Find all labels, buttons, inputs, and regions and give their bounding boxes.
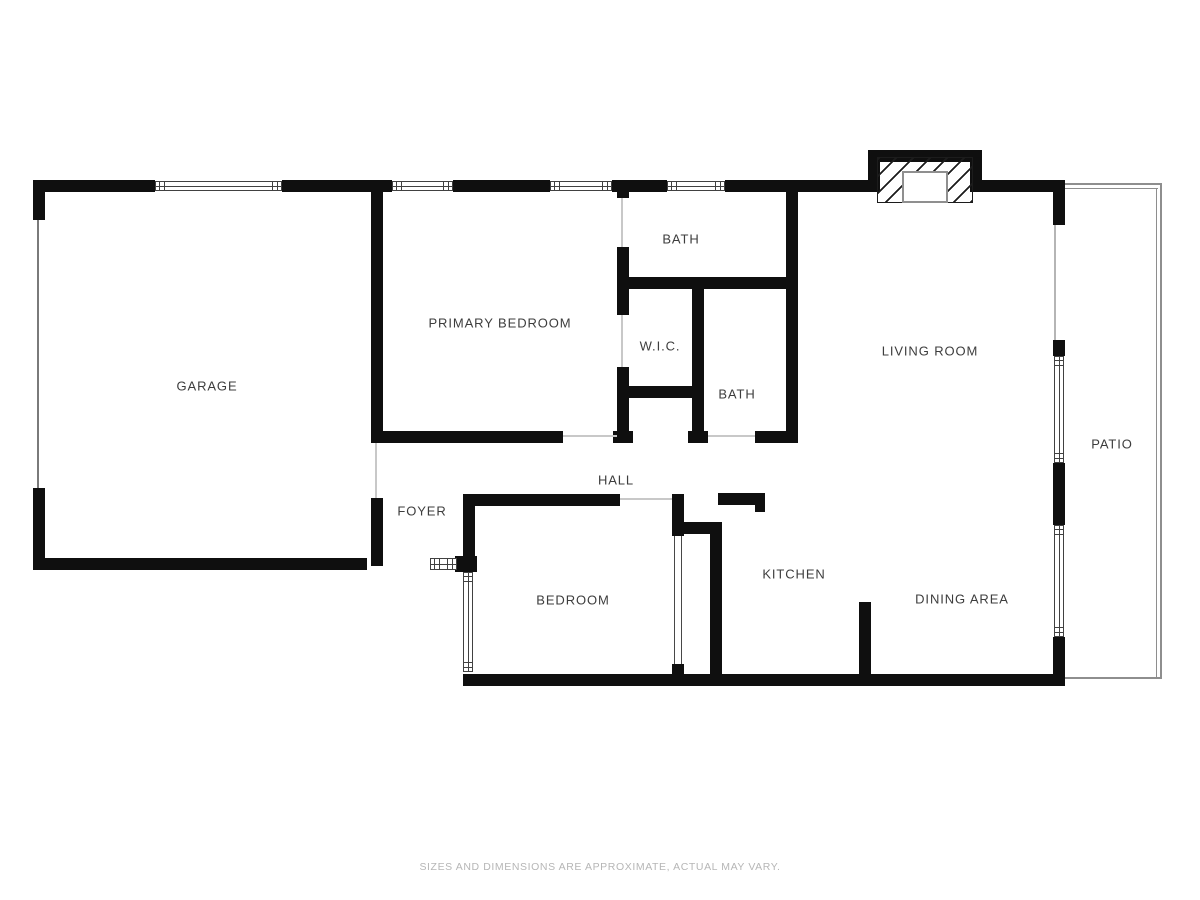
patio-edge-top-inner <box>1065 188 1158 189</box>
wall-segment <box>625 277 798 289</box>
wall-segment <box>688 431 708 443</box>
wall-segment <box>1053 180 1065 225</box>
wall-segment <box>617 367 629 431</box>
garage-vehicle-door-line <box>37 220 39 488</box>
window-glyph <box>550 181 612 191</box>
wall-segment <box>463 494 620 506</box>
wall-segment <box>692 289 704 431</box>
window-glyph <box>1054 525 1064 637</box>
window-jamb-tick <box>1055 529 1063 535</box>
window-jamb-tick <box>1055 453 1063 459</box>
wall-segment <box>1053 340 1065 356</box>
room-label-dining-area: DINING AREA <box>915 592 1009 607</box>
wall-segment <box>453 180 550 192</box>
closet-sliding-door <box>674 536 682 664</box>
wall-segment <box>710 522 722 680</box>
room-label-wic: W.I.C. <box>640 339 681 354</box>
wall-segment <box>33 558 367 570</box>
window-jamb-tick <box>671 182 677 190</box>
window-jamb-tick <box>464 576 472 582</box>
patio-edge-right <box>1160 183 1162 679</box>
room-label-hall: HALL <box>598 473 634 488</box>
room-label-bath-top: BATH <box>662 232 699 247</box>
fireplace-firebox <box>902 171 948 203</box>
wall-segment <box>33 488 45 568</box>
wall-segment <box>725 180 868 192</box>
window-jamb-tick <box>447 559 453 569</box>
wall-segment <box>786 192 798 443</box>
wall-segment <box>859 602 871 686</box>
wall-segment <box>33 180 155 192</box>
wall-segment <box>1053 463 1065 525</box>
room-label-primary-bedroom: PRIMARY BEDROOM <box>428 316 571 331</box>
floor-plan-canvas: GARAGEPRIMARY BEDROOMBATHW.I.C.BATHLIVIN… <box>0 0 1200 900</box>
window-pane-line <box>1059 357 1060 462</box>
window-jamb-tick <box>159 182 165 190</box>
room-label-garage: GARAGE <box>176 379 237 394</box>
wall-segment <box>33 180 45 220</box>
wall-segment <box>617 386 704 398</box>
window-jamb-tick <box>434 559 440 569</box>
bath-top-door-opening <box>621 198 623 247</box>
window-jamb-tick <box>1055 360 1063 366</box>
patio-edge-top <box>1065 183 1162 185</box>
room-label-foyer: FOYER <box>397 504 446 519</box>
window-jamb-tick <box>464 662 472 668</box>
primary-bedroom-door-opening <box>563 435 617 437</box>
room-label-bath-hall: BATH <box>718 387 755 402</box>
window-jamb-tick <box>715 182 721 190</box>
wall-segment <box>755 493 765 512</box>
room-label-patio: PATIO <box>1091 437 1133 452</box>
wall-segment <box>463 494 475 562</box>
room-label-kitchen: KITCHEN <box>762 567 825 582</box>
window-jamb-tick <box>554 182 560 190</box>
window-jamb-tick <box>602 182 608 190</box>
wic-door-opening <box>621 315 623 367</box>
wall-segment <box>455 556 477 572</box>
room-label-bedroom: BEDROOM <box>536 593 609 608</box>
window-glyph <box>463 572 473 672</box>
wall-segment <box>672 664 684 676</box>
window-pane-line <box>468 573 469 671</box>
patio-edge-right-inner <box>1156 188 1157 677</box>
window-glyph <box>155 181 282 191</box>
patio-edge-bottom <box>1065 677 1161 679</box>
bath-hall-door-opening <box>708 435 755 437</box>
patio-slider-opening <box>1054 225 1056 340</box>
bedroom-door-opening <box>620 498 672 500</box>
wall-segment <box>617 192 629 198</box>
wall-segment <box>371 180 383 443</box>
wall-segment <box>613 431 633 443</box>
window-glyph <box>392 181 453 191</box>
room-label-living-room: LIVING ROOM <box>882 344 979 359</box>
wall-segment <box>371 431 563 443</box>
window-glyph <box>430 558 457 570</box>
window-glyph <box>667 181 725 191</box>
window-pane-line <box>156 186 281 187</box>
window-jamb-tick <box>1055 627 1063 633</box>
disclaimer-text: SIZES AND DIMENSIONS ARE APPROXIMATE, AC… <box>0 861 1200 873</box>
wall-segment <box>463 674 1065 686</box>
window-jamb-tick <box>443 182 449 190</box>
garage-entry-door-opening <box>375 443 377 498</box>
window-glyph <box>1054 356 1064 463</box>
wall-segment <box>371 498 383 566</box>
window-jamb-tick <box>272 182 278 190</box>
window-jamb-tick <box>396 182 402 190</box>
window-pane-line <box>1059 526 1060 636</box>
wall-segment <box>982 180 1053 192</box>
wall-segment <box>612 180 667 192</box>
wall-segment <box>1053 637 1065 686</box>
